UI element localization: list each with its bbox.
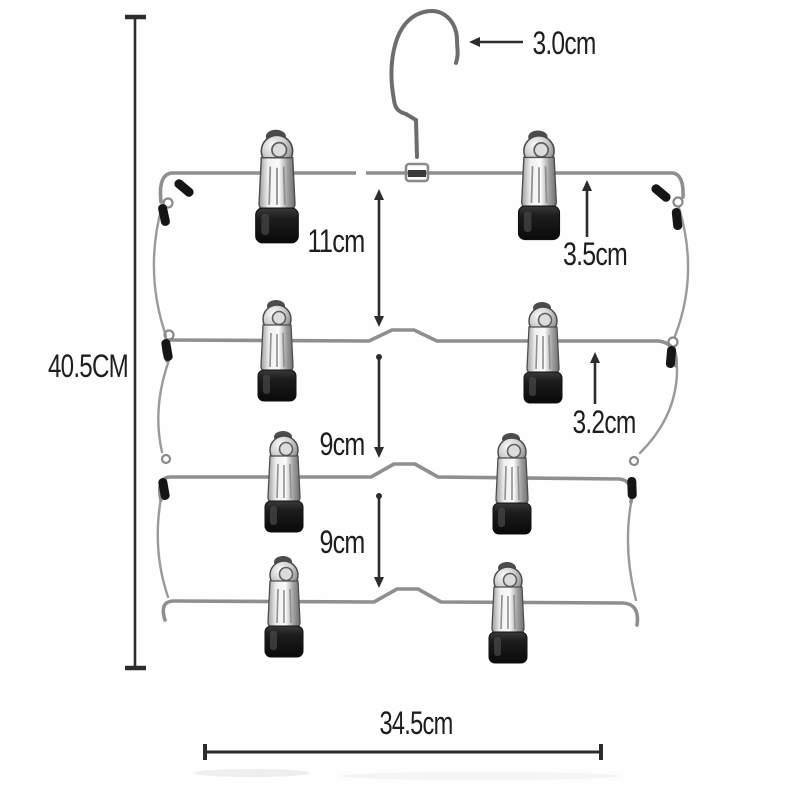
hanger-hook	[392, 11, 458, 181]
rubber-tip	[173, 177, 196, 198]
hook-clamp-shadow	[408, 170, 426, 177]
label-bar-width: 34.5cm	[380, 705, 453, 741]
label-total-height: 40.5CM	[48, 348, 128, 384]
dimension-clip-length-top: 3.5cm	[563, 180, 627, 272]
label-second-tier-gap: 9cm	[320, 426, 365, 462]
side-wire-right-3	[628, 503, 636, 600]
floor-shadow	[194, 769, 620, 780]
hanger-diagram-canvas: 40.5CM 3.0cm 11cm 3.5cm	[0, 0, 800, 800]
dimension-total-height: 40.5CM	[48, 17, 146, 668]
tier-bar-1	[160, 173, 683, 202]
clip-tier3-left	[265, 431, 303, 532]
rubber-tip	[161, 338, 174, 361]
dimension-clip-length-lower: 3.2cm	[573, 352, 636, 440]
label-third-tier-gap: 9cm	[320, 524, 365, 560]
rubber-tip	[627, 477, 637, 499]
hanger-illustration	[154, 11, 688, 780]
side-wire-right-2	[640, 367, 677, 453]
label-clip-length-top: 3.5cm	[563, 236, 627, 272]
clip-tier3-right	[493, 433, 531, 534]
label-hook-width: 3.0cm	[533, 25, 596, 61]
dimension-second-tier-gap: 9cm	[320, 354, 385, 462]
dimension-third-tier-gap: 9cm	[320, 493, 385, 588]
bar-highlight	[356, 168, 366, 177]
end-loop	[674, 198, 683, 207]
dimension-first-tier-gap: 11cm	[308, 189, 385, 327]
dimension-bar-width: 34.5cm	[205, 705, 601, 760]
clip-tier1-left	[256, 130, 299, 243]
hook-shaft	[394, 100, 417, 157]
hook-curve	[392, 11, 458, 100]
end-loop	[669, 338, 678, 347]
side-wire-left-3	[158, 498, 168, 597]
garment-clips	[256, 130, 562, 663]
label-first-tier-gap: 11cm	[308, 223, 365, 259]
rubber-tip	[650, 182, 673, 203]
tier-bar-3	[160, 464, 632, 502]
tier-bar-4	[163, 589, 637, 625]
end-loop	[162, 455, 170, 463]
end-loop	[630, 457, 638, 465]
tier-bar-2	[164, 330, 677, 366]
product-dimension-diagram: 40.5CM 3.0cm 11cm 3.5cm	[0, 0, 800, 800]
clip-tier2-right	[524, 302, 562, 403]
clip-tier2-left	[258, 300, 296, 401]
label-clip-length-lower: 3.2cm	[573, 404, 636, 440]
side-wire-left-2	[158, 360, 169, 452]
clip-tier1-right	[518, 130, 559, 239]
clip-tier4-right	[489, 562, 527, 663]
dimension-hook-width: 3.0cm	[469, 25, 596, 61]
clip-tier4-left	[265, 556, 303, 657]
